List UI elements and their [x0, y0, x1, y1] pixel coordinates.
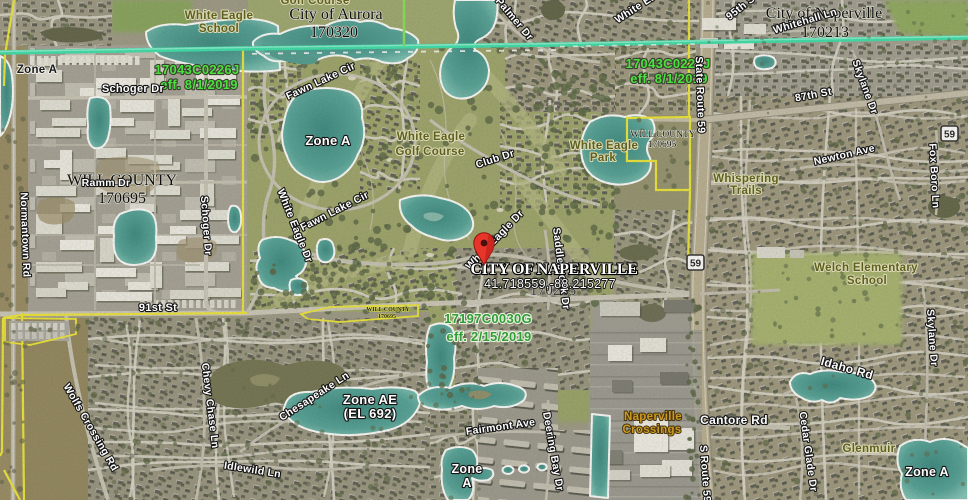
svg-text:White Eagle: White Eagle	[570, 140, 638, 152]
svg-text:Trails: Trails	[730, 185, 762, 197]
svg-text:Whispering: Whispering	[713, 173, 779, 185]
svg-text:91st St: 91st St	[139, 302, 177, 314]
svg-text:Zone AE: Zone AE	[343, 392, 397, 407]
svg-text:CITY OF NAPERVILLE: CITY OF NAPERVILLE	[470, 261, 637, 278]
svg-text:Crossings: Crossings	[623, 424, 682, 436]
svg-text:Zone A: Zone A	[305, 133, 351, 148]
svg-text:eff. 2/15/2019: eff. 2/15/2019	[446, 329, 531, 344]
svg-text:Schoger Dr: Schoger Dr	[102, 83, 165, 95]
svg-text:17197C0030G: 17197C0030G	[444, 311, 532, 326]
svg-text:Zone A: Zone A	[905, 465, 949, 479]
svg-text:Park: Park	[590, 152, 616, 164]
svg-text:17043C0226J: 17043C0226J	[155, 62, 240, 77]
svg-text:Golf Course: Golf Course	[395, 146, 464, 158]
svg-text:City of Aurora: City of Aurora	[289, 6, 382, 23]
svg-text:170695: 170695	[98, 190, 146, 207]
svg-text:WILL COUNTY: WILL COUNTY	[366, 307, 410, 313]
svg-text:170320: 170320	[310, 24, 358, 41]
svg-text:Zone A: Zone A	[17, 64, 57, 76]
svg-text:eff. 8/1/2019: eff. 8/1/2019	[160, 77, 238, 92]
svg-text:School: School	[847, 275, 887, 287]
svg-text:School: School	[199, 23, 239, 35]
svg-text:White Eagle: White Eagle	[185, 10, 253, 22]
svg-text:Golf Course: Golf Course	[280, 0, 349, 7]
svg-text:Ramm Dr: Ramm Dr	[82, 177, 131, 189]
svg-text:Welch Elementary: Welch Elementary	[814, 262, 918, 274]
svg-text:White Eagle: White Eagle	[397, 131, 465, 143]
svg-text:(EL 692): (EL 692)	[344, 406, 397, 421]
svg-text:Zone: Zone	[451, 462, 482, 476]
svg-text:WILL COUNTY: WILL COUNTY	[630, 130, 695, 140]
svg-text:170213: 170213	[801, 24, 849, 41]
svg-text:A: A	[462, 476, 471, 490]
svg-text:Naperville: Naperville	[624, 411, 682, 423]
svg-text:170695: 170695	[378, 314, 396, 320]
svg-text:41.718559,-88.215277: 41.718559,-88.215277	[484, 277, 616, 291]
svg-text:Glenmuir: Glenmuir	[843, 443, 896, 455]
svg-text:170695: 170695	[648, 140, 677, 150]
svg-text:Cantore Rd: Cantore Rd	[700, 413, 768, 427]
